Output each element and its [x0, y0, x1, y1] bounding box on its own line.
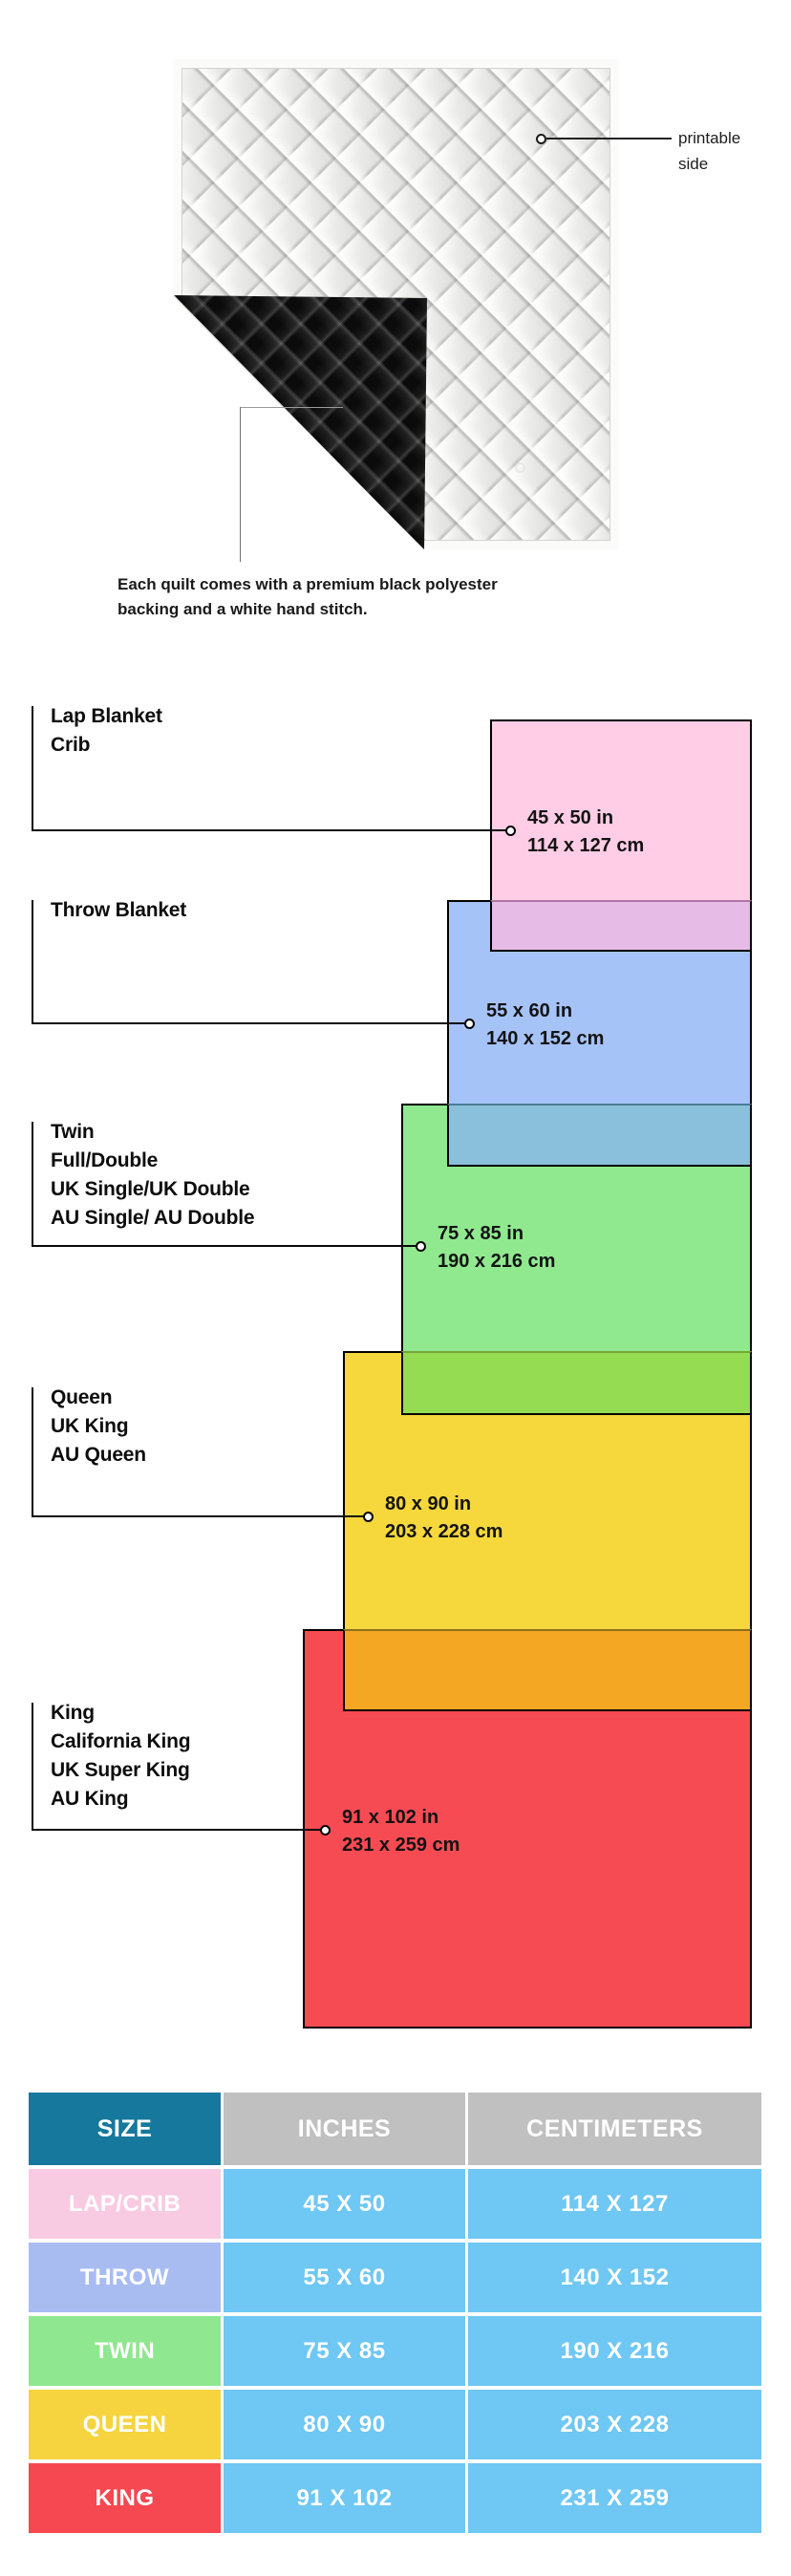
label-connector-horizontal-lap — [32, 829, 505, 831]
label-connector-vertical-queen — [32, 1387, 33, 1517]
size-dimensions-lap: 45 x 50 in114 x 127 cm — [527, 805, 644, 860]
size-marker-circle-lap — [505, 826, 516, 836]
size-marker-circle-throw — [464, 1019, 475, 1029]
size-dimensions-lap-cm: 114 x 127 cm — [527, 832, 644, 860]
size-dimensions-king-cm: 231 x 259 cm — [342, 1832, 460, 1859]
table-row-lap-crib-inches-cell: 45 X 50 — [224, 2169, 465, 2239]
overlap-band-lap-throw — [490, 900, 752, 952]
label-connector-horizontal-throw — [32, 1022, 464, 1024]
size-label-lap-line2: Crib — [51, 731, 162, 760]
table-row-throw-row-label-cell: THROW — [29, 2243, 221, 2312]
table-row-throw-cm-cell: 140 X 152 — [468, 2243, 761, 2312]
table-row-twin-row-label-cell: TWIN — [29, 2316, 221, 2386]
table-row-king-cm-cell: 231 X 259 — [468, 2463, 761, 2533]
quilt-size-chart-infographic: printable side Each quilt comes with a p… — [0, 0, 791, 2576]
label-connector-horizontal-king — [32, 1829, 320, 1831]
size-label-twin-line4: AU Single/ AU Double — [51, 1204, 254, 1233]
overlap-band-queen-king — [343, 1629, 752, 1711]
table-row-king-row-label-cell: KING — [29, 2463, 221, 2533]
size-label-king-line1: King — [51, 1699, 190, 1728]
overlap-band-throw-twin — [447, 1104, 752, 1167]
size-dimensions-twin-cm: 190 x 216 cm — [438, 1248, 555, 1276]
table-row-lap-crib-row-label-cell: LAP/CRIB — [29, 2169, 221, 2239]
size-label-king: KingCalifornia KingUK Super KingAU King — [51, 1699, 190, 1814]
table-row-queen-inches-cell: 80 X 90 — [224, 2390, 465, 2459]
size-dimensions-twin-inches: 75 x 85 in — [438, 1220, 555, 1248]
size-label-queen-line3: AU Queen — [51, 1441, 146, 1470]
backing-leader-horizontal — [240, 407, 343, 408]
label-connector-vertical-lap — [32, 706, 33, 831]
size-label-king-line4: AU King — [51, 1785, 190, 1814]
printable-leader-line — [546, 138, 672, 140]
size-dimensions-throw-inches: 55 x 60 in — [486, 998, 604, 1025]
size-dimensions-king-inches: 91 x 102 in — [342, 1804, 460, 1832]
size-label-queen: QueenUK KingAU Queen — [51, 1384, 146, 1470]
size-label-throw-line1: Throw Blanket — [51, 896, 186, 925]
printable-side-label-line2: side — [678, 151, 783, 177]
size-label-throw: Throw Blanket — [51, 896, 186, 925]
size-dimensions-throw-cm: 140 x 152 cm — [486, 1025, 604, 1053]
size-dimensions-throw: 55 x 60 in140 x 152 cm — [486, 998, 604, 1053]
size-label-lap: Lap BlanketCrib — [51, 702, 162, 760]
size-label-twin-line3: UK Single/UK Double — [51, 1175, 254, 1204]
hero-caption: Each quilt comes with a premium black po… — [118, 572, 498, 622]
header-cell-size: SIZE — [29, 2093, 221, 2165]
label-connector-vertical-king — [32, 1703, 33, 1831]
size-label-lap-line1: Lap Blanket — [51, 702, 162, 731]
header-cell-inches: INCHES — [224, 2093, 465, 2165]
size-label-king-line3: UK Super King — [51, 1756, 190, 1785]
size-dimensions-twin: 75 x 85 in190 x 216 cm — [438, 1220, 555, 1276]
table-row-lap-crib-cm-cell: 114 X 127 — [468, 2169, 761, 2239]
printable-marker-circle — [536, 134, 546, 144]
size-label-queen-line1: Queen — [51, 1384, 146, 1412]
size-label-twin-line1: Twin — [51, 1118, 254, 1147]
size-label-queen-line2: UK King — [51, 1412, 146, 1441]
label-connector-horizontal-twin — [32, 1245, 416, 1247]
table-row-twin-cm-cell: 190 X 216 — [468, 2316, 761, 2386]
size-marker-circle-king — [320, 1825, 331, 1835]
size-marker-circle-queen — [363, 1512, 374, 1522]
table-row-throw-inches-cell: 55 X 60 — [224, 2243, 465, 2312]
size-dimensions-queen-cm: 203 x 228 cm — [385, 1518, 502, 1546]
table-row-queen-cm-cell: 203 X 228 — [468, 2390, 761, 2459]
size-dimensions-queen-inches: 80 x 90 in — [385, 1491, 502, 1518]
label-connector-vertical-twin — [32, 1122, 33, 1247]
printable-side-label-line1: printable — [678, 125, 783, 151]
hero-caption-line1: Each quilt comes with a premium black po… — [118, 572, 498, 597]
table-row-king-inches-cell: 91 X 102 — [224, 2463, 465, 2533]
printable-side-label: printable side — [678, 125, 783, 177]
label-connector-horizontal-queen — [32, 1515, 363, 1517]
label-connector-vertical-throw — [32, 900, 33, 1024]
size-label-twin: TwinFull/DoubleUK Single/UK DoubleAU Sin… — [51, 1118, 254, 1233]
header-cell-centimeters: CENTIMETERS — [468, 2093, 761, 2165]
size-marker-circle-twin — [416, 1241, 426, 1252]
backing-marker-circle — [515, 462, 525, 473]
overlap-band-twin-queen — [401, 1351, 752, 1415]
size-label-king-line2: California King — [51, 1728, 190, 1756]
backing-leader-vertical — [240, 407, 241, 562]
hero-caption-line2: backing and a white hand stitch. — [118, 597, 498, 622]
size-dimensions-lap-inches: 45 x 50 in — [527, 805, 644, 832]
size-dimensions-king: 91 x 102 in231 x 259 cm — [342, 1804, 460, 1859]
size-dimensions-queen: 80 x 90 in203 x 228 cm — [385, 1491, 502, 1546]
size-label-twin-line2: Full/Double — [51, 1147, 254, 1175]
table-row-twin-inches-cell: 75 X 85 — [224, 2316, 465, 2386]
table-row-queen-row-label-cell: QUEEN — [29, 2390, 221, 2459]
